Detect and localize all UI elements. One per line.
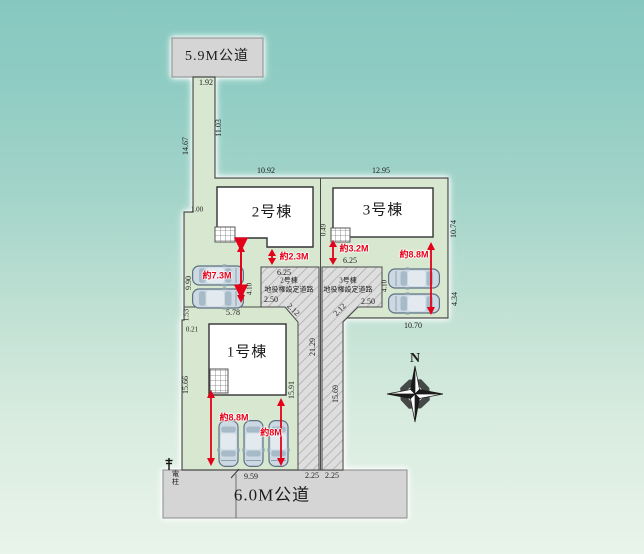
site-plan-page: 5.9M公道 6.0M公道 1号棟 2号棟 3号棟 2号棟 地役権設定道路 3号… bbox=[0, 0, 644, 554]
compass-rose bbox=[387, 366, 443, 422]
terrace-grid-building1 bbox=[210, 369, 228, 393]
terrace-grid-building2 bbox=[215, 227, 235, 242]
utility-pole-icon bbox=[166, 458, 173, 470]
road-top bbox=[172, 38, 263, 77]
site-plan-drawing bbox=[0, 0, 644, 554]
easement-road-right bbox=[322, 267, 382, 470]
terrace-grid-building3 bbox=[331, 228, 350, 242]
road-bottom bbox=[163, 470, 407, 518]
